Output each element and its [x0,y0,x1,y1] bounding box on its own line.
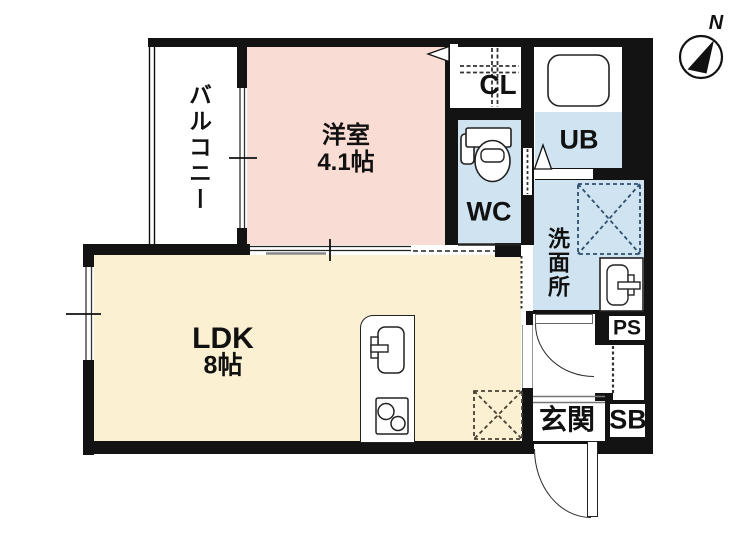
entrance-door-leaf [587,441,598,517]
fridge-space-icon [474,391,522,439]
western-room-size: 4.1帖 [317,151,374,175]
toilet-icon [461,128,511,182]
pipe-space-label: PS [613,318,641,339]
compass-icon [680,36,722,78]
entrance-step-lines [533,397,605,403]
ldk-window-icon [66,267,101,360]
stove-icon [376,398,408,434]
floorplan: バルコニー 洋室 4.1帖 LDK 8帖 CL WC UB 洗面所 PS 玄関 … [0,0,750,550]
floorplan-linework [0,0,750,550]
entrance-label: 玄関 [539,406,595,434]
washer-space-icon [578,184,640,254]
ldk-label: LDK [192,324,254,354]
toilet-label: WC [467,199,512,226]
washbasin-icon [600,258,643,311]
sliding-door-icon [250,239,521,261]
unit-bath-label: UB [560,127,599,154]
closet-door-swing-icon [428,47,449,62]
western-room-label: 洋室 [322,124,370,148]
bathtub-icon [548,55,609,106]
hall-door-leaf [535,314,593,324]
balcony-label: バルコニー [187,83,210,213]
balcony-railing [150,38,155,244]
closet-label: CL [479,71,516,99]
kitchen-sink-icon [371,327,404,373]
bath-door-swing-icon [535,145,552,169]
shoe-box-label: SB [609,407,647,434]
compass-north-label: N [709,13,723,33]
washroom-label: 洗面所 [546,227,568,299]
balcony-window-icon [229,88,257,228]
ldk-size: 8帖 [204,354,243,379]
